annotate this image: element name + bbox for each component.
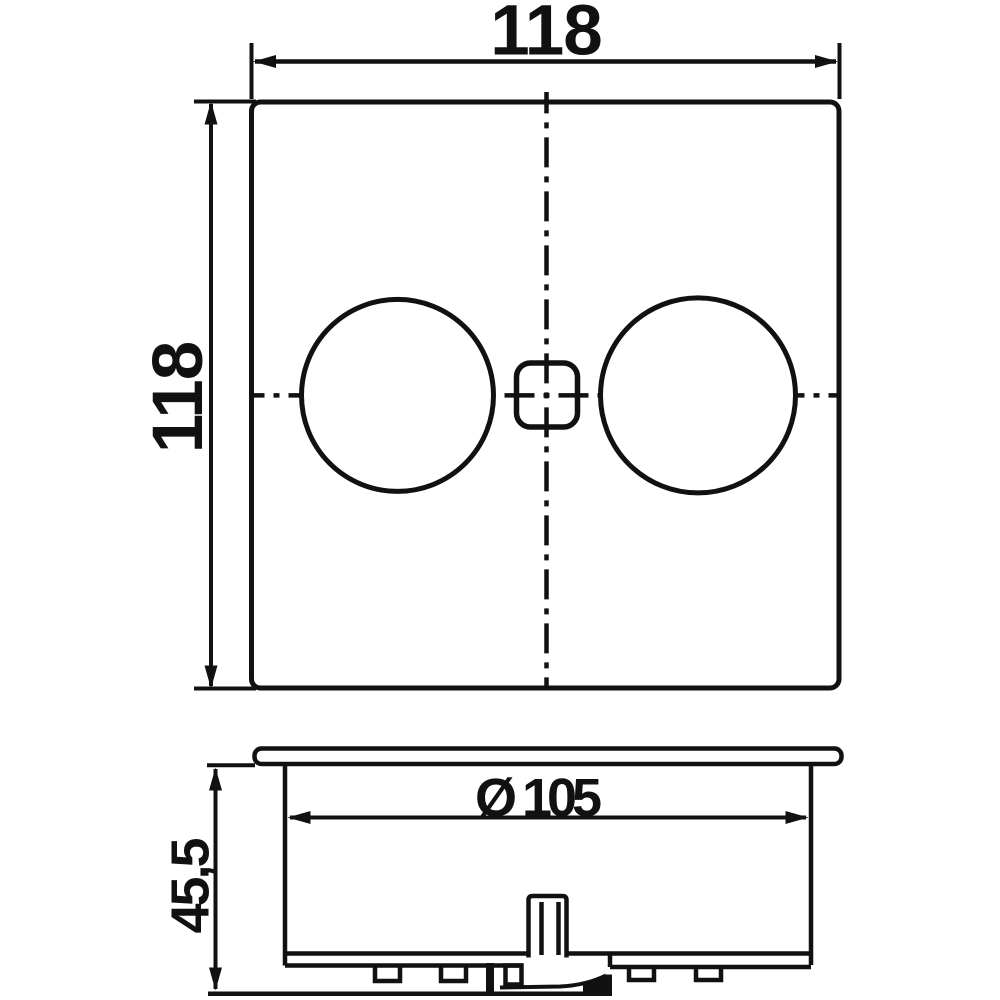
svg-text:118: 118 <box>139 342 218 454</box>
svg-text:118: 118 <box>490 0 602 71</box>
svg-text:Ø 105: Ø 105 <box>475 768 601 828</box>
svg-text:45,5: 45,5 <box>161 838 221 933</box>
